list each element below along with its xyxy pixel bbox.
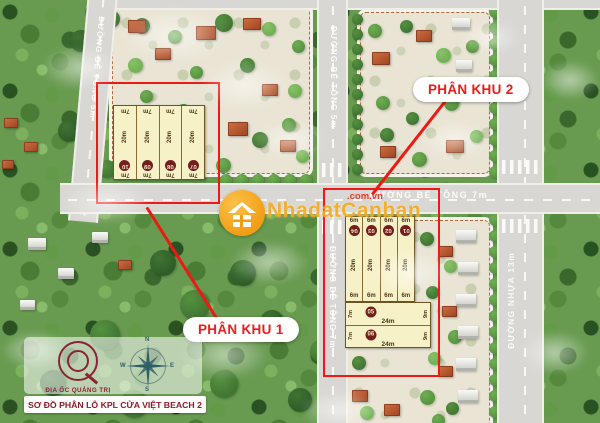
site-plan-map: ĐƯỜNG BÊ TÔNG 5m ĐƯỜNG BÊ TÔNG 5m ĐƯỜNG … <box>0 0 600 423</box>
agency-name: ĐỊA ỐC QUẢNG TRỊ <box>36 387 120 394</box>
compass-west: W <box>120 363 126 369</box>
compass-north: N <box>145 337 149 343</box>
agency-logo: ĐỊA ỐC QUẢNG TRỊ <box>36 341 120 393</box>
footer-layer: ĐỊA ỐC QUẢNG TRỊ N S W E SƠ ĐỒ PHÂN LÔ K… <box>0 0 600 423</box>
compass-south: S <box>145 387 149 393</box>
map-title: SƠ ĐỒ PHÂN LÔ KPL CỬA VIỆT BEACH 2 <box>24 396 206 413</box>
compass-rose-icon: N S W E <box>122 340 174 392</box>
compass-east: E <box>170 363 174 369</box>
logo-ring-icon <box>67 350 89 372</box>
legend-panel: ĐỊA ỐC QUẢNG TRỊ N S W E <box>24 337 202 394</box>
